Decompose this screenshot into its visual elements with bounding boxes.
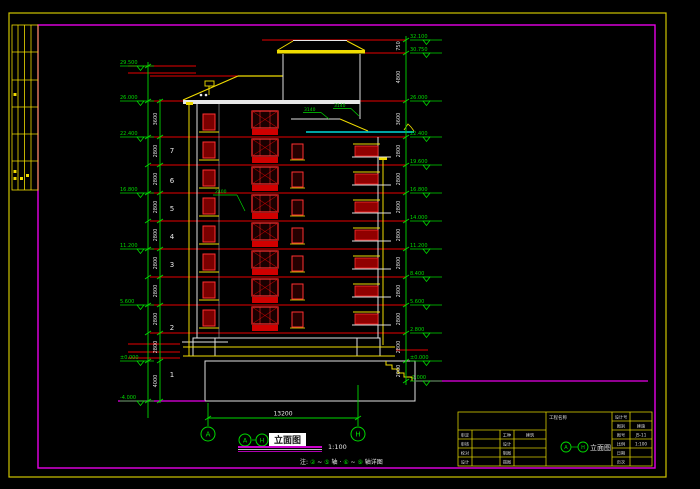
storey-dim: 3600 bbox=[396, 113, 402, 126]
elevation-value: 11.200 bbox=[120, 243, 138, 249]
titleblock-label: 审核 bbox=[461, 441, 470, 448]
elevation-value: 30.750 bbox=[410, 47, 428, 53]
ground-and-base bbox=[118, 342, 648, 401]
elevation-value: 8.400 bbox=[410, 271, 424, 277]
elevation-value: 32.100 bbox=[410, 34, 428, 40]
elevation-value: -2.000 bbox=[410, 375, 426, 381]
storey-dim: 2800 bbox=[153, 257, 159, 270]
titleblock-drawing-name: 立面图 bbox=[590, 443, 611, 452]
titleblock-label: 校对 bbox=[461, 450, 469, 457]
revision-table bbox=[12, 25, 38, 190]
storey-dim: 2800 bbox=[153, 229, 159, 242]
elevation-value: 16.800 bbox=[120, 187, 138, 193]
revision-table-marks bbox=[14, 93, 30, 180]
titleblock-axis-from: A bbox=[564, 445, 568, 451]
storey-dim: 2800 bbox=[396, 145, 402, 158]
elevation-value: 5.600 bbox=[120, 299, 134, 305]
elevation-value: 11.200 bbox=[410, 243, 428, 249]
floor-unit bbox=[199, 167, 391, 191]
elevation-marker: 30.750 bbox=[410, 47, 442, 58]
grid-letter: H bbox=[355, 431, 360, 439]
elevation-marker: 11.200 bbox=[410, 243, 442, 254]
storey-dim: 2000 bbox=[396, 365, 402, 378]
titleblock-label: 描图 bbox=[503, 459, 511, 466]
leader-label: 2400 bbox=[215, 189, 227, 195]
titleblock-axis-to: H bbox=[581, 445, 585, 451]
title-axis-from: A bbox=[243, 438, 248, 445]
floor-label: 2 bbox=[170, 324, 174, 332]
storey-dim: 2800 bbox=[396, 341, 402, 354]
elevation-marker: 16.800 bbox=[410, 187, 442, 198]
storey-dim: 2800 bbox=[153, 201, 159, 214]
left-dimension-chain: 3600280028002800280028002800280028004000… bbox=[120, 60, 163, 418]
storey-dim: 750 bbox=[396, 41, 402, 51]
titleblock-value: JS-11 bbox=[635, 433, 647, 438]
floor-label: 4 bbox=[170, 233, 175, 241]
titleblock-label: 设计 bbox=[503, 441, 511, 448]
note-axis-ref: ⑥ bbox=[343, 459, 350, 466]
storey-dim: 2800 bbox=[396, 285, 402, 298]
span-dimension: 13200 bbox=[273, 411, 292, 418]
titleblock-label: 审定 bbox=[461, 432, 469, 439]
elevation-value: 19.600 bbox=[410, 159, 428, 165]
elevation-value: 16.800 bbox=[410, 187, 428, 193]
storey-dim: 3600 bbox=[153, 113, 159, 126]
elevation-marker: 14.000 bbox=[410, 215, 442, 226]
elevation-marker: 19.600 bbox=[410, 159, 442, 170]
elevation-value: 26.000 bbox=[120, 95, 138, 101]
elevation-value: -4.000 bbox=[120, 395, 136, 401]
floor-unit bbox=[199, 251, 391, 275]
floor-unit bbox=[199, 279, 391, 303]
floor-unit bbox=[199, 223, 391, 247]
stair-tower bbox=[277, 41, 365, 120]
project-label: 工程名称 bbox=[549, 414, 567, 421]
storey-dim: 2800 bbox=[396, 229, 402, 242]
main-roof bbox=[183, 76, 360, 104]
floor-label: 6 bbox=[170, 177, 175, 185]
floor-label: 1 bbox=[170, 371, 174, 379]
tower-eave bbox=[277, 50, 365, 54]
titleblock-label: 设计号 bbox=[615, 414, 628, 421]
slope-label: 3140 bbox=[334, 103, 346, 109]
elevation-marker: 32.100 bbox=[410, 34, 442, 45]
elevation-value: 26.000 bbox=[410, 95, 428, 101]
note-line: 注: ② ~ ⑤ 轴 · ⑥ ~ ⑨ 轴详图 bbox=[300, 458, 383, 466]
note-text: ~ bbox=[317, 459, 324, 466]
floor-label: 5 bbox=[170, 205, 174, 213]
storey-dim: 2800 bbox=[396, 201, 402, 214]
floor-unit bbox=[199, 111, 278, 135]
elevation-value: 5.600 bbox=[410, 299, 424, 305]
titleblock-label: 日期 bbox=[617, 451, 625, 457]
storey-dim: 2800 bbox=[153, 145, 159, 158]
elevation-value: 22.400 bbox=[410, 131, 428, 137]
storey-dim: 2800 bbox=[396, 313, 402, 326]
elevation-value: 29.500 bbox=[120, 60, 138, 66]
floor-unit bbox=[199, 195, 391, 219]
note-text: ~ bbox=[351, 459, 358, 466]
elevation-marker: 22.400 bbox=[410, 131, 442, 142]
storey-dim: 2800 bbox=[153, 285, 159, 298]
storey-dim: 2800 bbox=[396, 173, 402, 186]
titleblock-value: 建施 bbox=[637, 423, 646, 430]
elevation-drawing: 3140 3140 2400 3600280028002800280028002… bbox=[0, 0, 700, 489]
elevation-value: 14.000 bbox=[410, 215, 428, 221]
grid-letter: A bbox=[206, 431, 211, 439]
cad-canvas: 3140 3140 2400 3600280028002800280028002… bbox=[0, 0, 700, 489]
floor-label: 7 bbox=[170, 147, 174, 155]
note-axis-ref: ⑤ bbox=[324, 459, 331, 466]
titleblock-label: 页次 bbox=[617, 459, 626, 466]
storey-dim: 2800 bbox=[153, 173, 159, 186]
storey-dim: 2800 bbox=[153, 313, 159, 326]
note-text: 轴 bbox=[331, 458, 339, 466]
titleblock-label: 制图 bbox=[503, 450, 511, 457]
titleblock-label: 图号 bbox=[617, 433, 625, 439]
slope-label: 3140 bbox=[304, 107, 316, 113]
floor-unit bbox=[199, 307, 391, 331]
elevation-marker: 8.400 bbox=[410, 271, 442, 282]
note-text: 注: bbox=[300, 458, 310, 466]
floor-unit bbox=[199, 139, 391, 163]
storey-dim: 4000 bbox=[153, 375, 159, 388]
note-axis-ref: ⑨ bbox=[357, 459, 364, 466]
grid-axes: A H 13200 bbox=[201, 385, 365, 441]
titleblock-value: 建筑 bbox=[526, 432, 535, 439]
titleblock-label: 图别 bbox=[617, 423, 625, 430]
elevation-value: 22.400 bbox=[120, 131, 138, 137]
plinth bbox=[183, 338, 395, 356]
title-axis-to: H bbox=[260, 438, 265, 445]
note-text: 轴详图 bbox=[365, 458, 383, 466]
title-scale: 1:100 bbox=[328, 443, 347, 451]
titleblock-value: 1:100 bbox=[635, 442, 647, 447]
floor-label: 3 bbox=[170, 261, 174, 269]
storey-dim: 2800 bbox=[153, 341, 159, 354]
titleblock-label: 设计 bbox=[461, 459, 469, 466]
elevation-marker: 26.000 bbox=[410, 95, 442, 106]
titleblock-label: 比例 bbox=[617, 441, 625, 448]
title-text: 立面图 bbox=[274, 434, 301, 446]
note-axis-ref: ② bbox=[310, 459, 317, 466]
storey-dim: 2800 bbox=[396, 257, 402, 270]
elevation-value: ±0.000 bbox=[120, 355, 139, 361]
drawing-frame bbox=[9, 13, 666, 477]
storey-dim: 4800 bbox=[396, 71, 402, 84]
elevation-marker: 2.800 bbox=[410, 327, 442, 338]
title-block: 工程名称 A H 立面图 审定审核校对设计工种建筑设计制图描图设计号图别建施图号… bbox=[458, 412, 652, 466]
drawing-title: A H 立面图 1:100 bbox=[238, 433, 347, 452]
elevation-marker: 5.600 bbox=[410, 299, 442, 310]
elevation-value: 2.800 bbox=[410, 327, 424, 333]
building-facade bbox=[183, 41, 414, 357]
elevation-value: ±0.000 bbox=[410, 355, 429, 361]
roof-vent bbox=[205, 81, 214, 86]
titleblock-label: 工种 bbox=[503, 432, 511, 439]
